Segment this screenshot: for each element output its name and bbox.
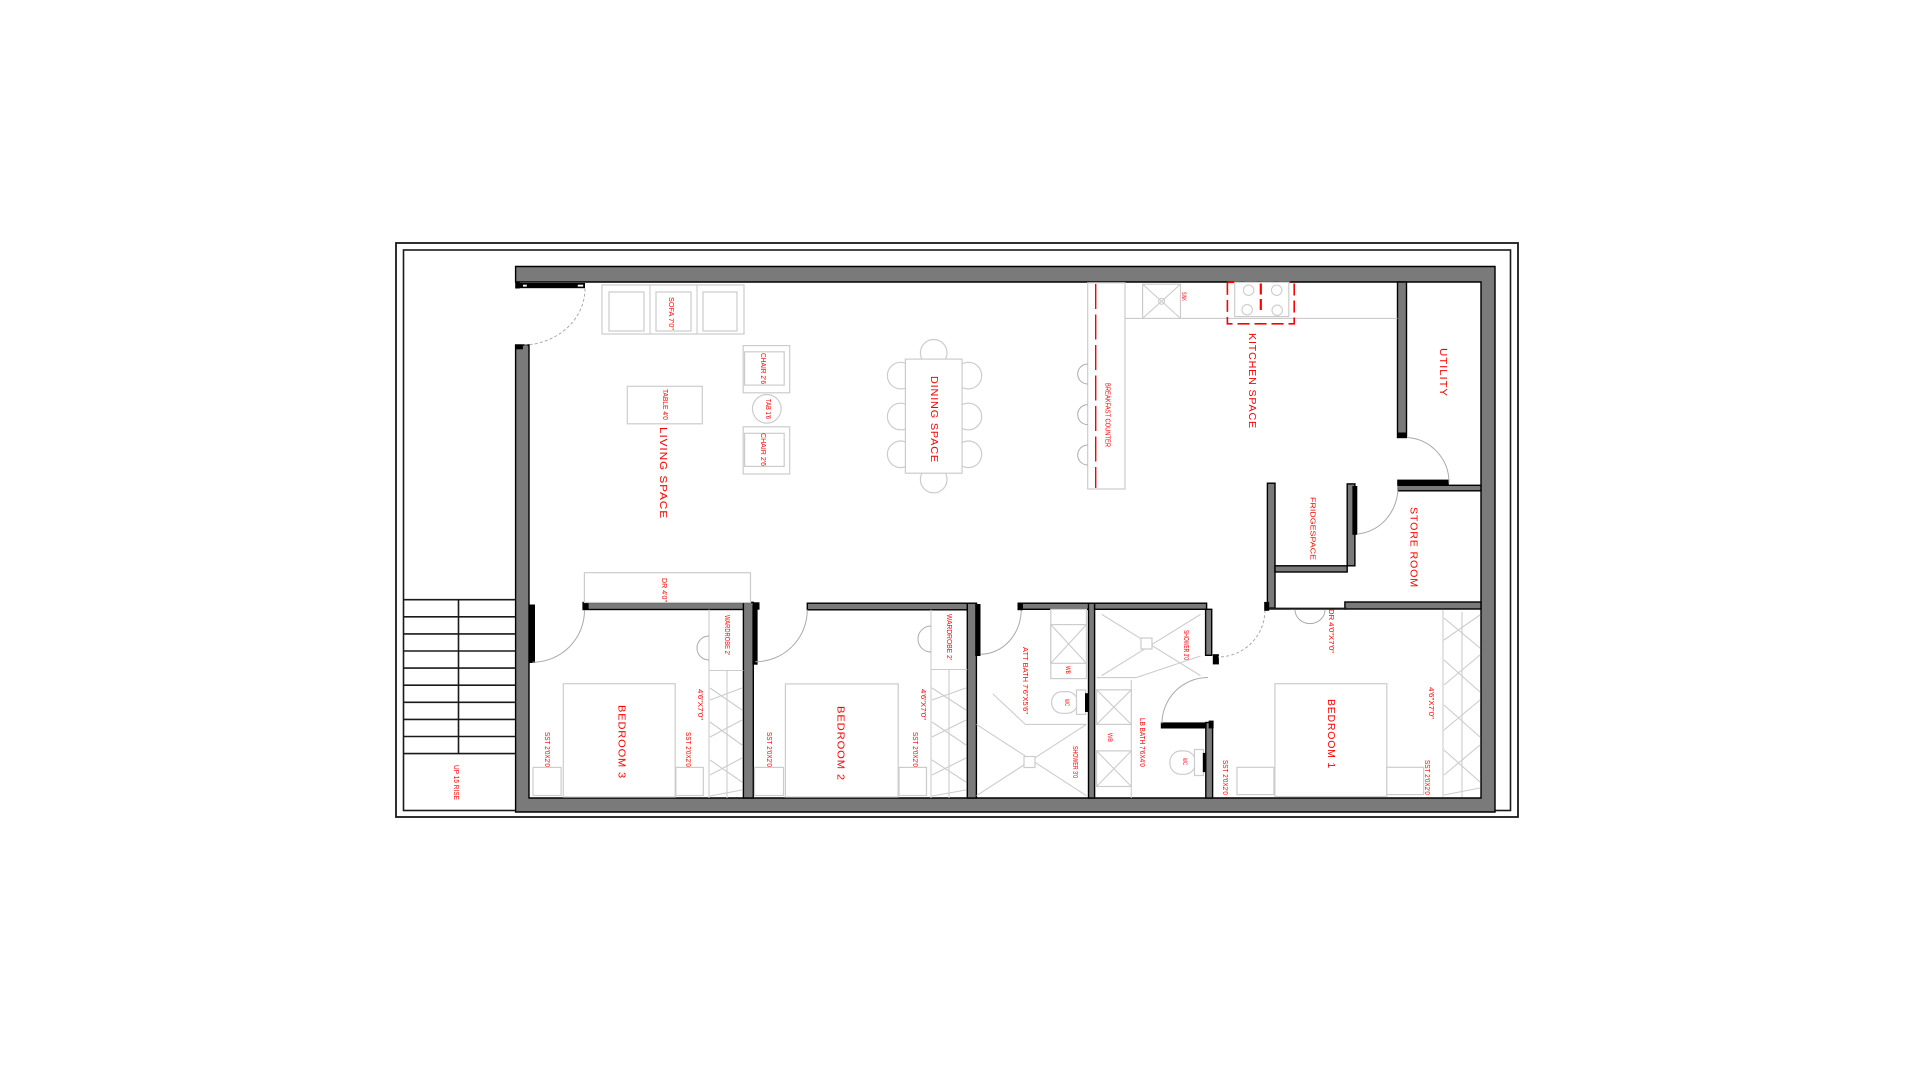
svg-text:SST 2'0X2'0: SST 2'0X2'0 xyxy=(911,732,918,767)
svg-text:4'6"X7'0": 4'6"X7'0" xyxy=(696,689,703,721)
svg-text:SHOWER 3'0: SHOWER 3'0 xyxy=(1071,746,1078,778)
svg-text:4'6"X7'0": 4'6"X7'0" xyxy=(1427,687,1434,720)
svg-text:4'6"X7'0": 4'6"X7'0" xyxy=(919,689,926,721)
svg-text:BEDROOM 3: BEDROOM 3 xyxy=(616,705,628,779)
svg-text:SINK: SINK xyxy=(1180,292,1186,301)
svg-text:CHAIR 2'6: CHAIR 2'6 xyxy=(759,353,766,384)
svg-text:KITCHEN SPACE: KITCHEN SPACE xyxy=(1246,333,1258,429)
svg-text:UP 15 RISE: UP 15 RISE xyxy=(452,765,459,800)
svg-text:BEDROOM 1: BEDROOM 1 xyxy=(1325,699,1337,769)
svg-text:SOFA 7'0": SOFA 7'0" xyxy=(667,297,674,331)
svg-text:WARDROBE 2': WARDROBE 2' xyxy=(945,614,952,660)
svg-text:SST 2'0X2'0: SST 2'0X2'0 xyxy=(684,732,691,767)
svg-text:DR 4'0"X7'0": DR 4'0"X7'0" xyxy=(1327,609,1334,654)
svg-text:DR 4'0": DR 4'0" xyxy=(660,578,667,603)
svg-text:LB BATH 7'6X4'0: LB BATH 7'6X4'0 xyxy=(1138,718,1145,767)
svg-text:WC: WC xyxy=(1181,758,1187,765)
svg-text:BEDROOM 2: BEDROOM 2 xyxy=(835,706,847,781)
svg-text:SST 2'0X2'0: SST 2'0X2'0 xyxy=(1423,760,1430,795)
svg-text:TABLE 4'0: TABLE 4'0 xyxy=(661,389,668,420)
svg-text:UTILITY: UTILITY xyxy=(1437,348,1449,397)
svg-text:SST 2'0X2'0: SST 2'0X2'0 xyxy=(543,732,550,767)
svg-text:WC: WC xyxy=(1063,699,1069,706)
svg-text:LIVING SPACE: LIVING SPACE xyxy=(657,427,669,519)
svg-text:SHOWER 3'0: SHOWER 3'0 xyxy=(1182,630,1189,660)
svg-text:CHAIR 2'6: CHAIR 2'6 xyxy=(759,433,766,466)
svg-text:WB: WB xyxy=(1064,666,1070,674)
svg-text:TAB 1'6: TAB 1'6 xyxy=(764,399,771,419)
svg-text:ATT BATH 7'6"X5'6": ATT BATH 7'6"X5'6" xyxy=(1021,647,1028,715)
svg-text:DINING SPACE: DINING SPACE xyxy=(928,376,940,463)
svg-text:SST 2'0X2'0: SST 2'0X2'0 xyxy=(765,732,772,767)
svg-text:FRIDGESPACE: FRIDGESPACE xyxy=(1309,497,1318,560)
svg-text:STORE ROOM: STORE ROOM xyxy=(1408,507,1420,588)
svg-text:WARDROBE 2': WARDROBE 2' xyxy=(723,615,730,655)
svg-text:WB: WB xyxy=(1106,733,1112,742)
svg-text:BREAKFAST COUNTER: BREAKFAST COUNTER xyxy=(1104,383,1113,447)
svg-text:SST 2'0X2'0: SST 2'0X2'0 xyxy=(1221,760,1228,795)
